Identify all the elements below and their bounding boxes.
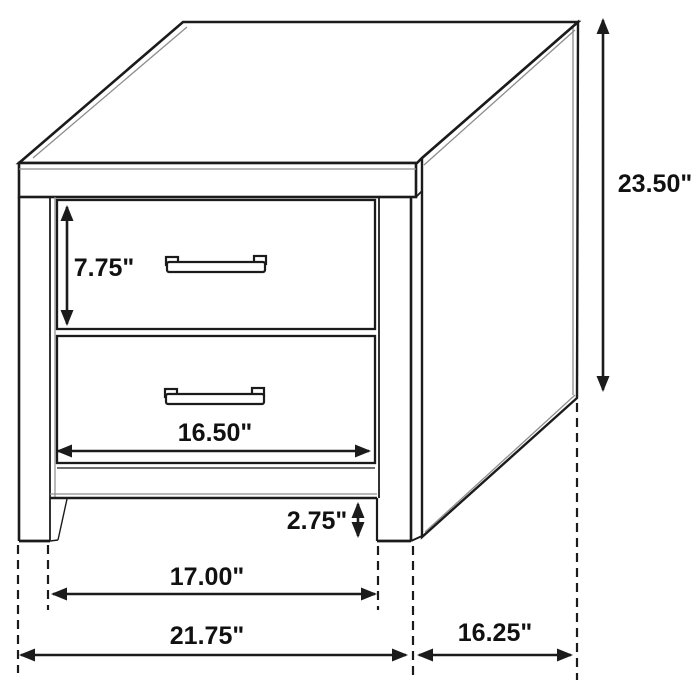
dimension-label-overall-height: 23.50" xyxy=(618,170,692,198)
dimension-leg-span: 17.00" xyxy=(51,563,377,601)
drawer-2-handle-bar xyxy=(166,394,264,404)
dimension-overall-height: 23.50" xyxy=(597,18,693,392)
arrowhead-up-icon xyxy=(597,18,610,34)
arrowhead-left-icon xyxy=(51,588,67,601)
dimension-label-depth: 16.25" xyxy=(458,619,532,647)
arrowhead-right-icon xyxy=(392,649,408,662)
arrowhead-right-icon xyxy=(361,588,377,601)
arrowhead-up-icon xyxy=(352,502,365,518)
dimension-label-overall-width: 21.75" xyxy=(170,622,244,650)
diagram-canvas: 23.50"7.75"16.50"2.75"17.00"21.75"16.25" xyxy=(0,0,700,700)
dimension-label-drawer-width: 16.50" xyxy=(178,419,252,447)
nightstand-diagram: 23.50"7.75"16.50"2.75"17.00"21.75"16.25" xyxy=(0,0,700,700)
arrowhead-left-icon xyxy=(417,649,433,662)
dimension-label-top-drawer-height: 7.75" xyxy=(74,254,135,282)
dimension-label-leg-span: 17.00" xyxy=(170,563,244,591)
left-leg-depth-bottom xyxy=(50,540,58,541)
arrowhead-left-icon xyxy=(19,649,35,662)
dimension-base-height: 2.75" xyxy=(287,502,365,538)
dimension-overall-width: 21.75" xyxy=(19,622,408,662)
left-leg-depth-edge xyxy=(58,499,67,540)
dimension-label-base-height: 2.75" xyxy=(287,507,348,535)
arrowhead-down-icon xyxy=(597,376,610,392)
arrowhead-down-icon xyxy=(352,522,365,538)
right-leg-side-bottom xyxy=(411,536,422,541)
arrowhead-right-icon xyxy=(557,649,573,662)
drawer-1-handle-bar xyxy=(167,262,265,272)
tabletop-front-edge xyxy=(19,163,416,197)
dimension-depth: 16.25" xyxy=(417,619,573,662)
